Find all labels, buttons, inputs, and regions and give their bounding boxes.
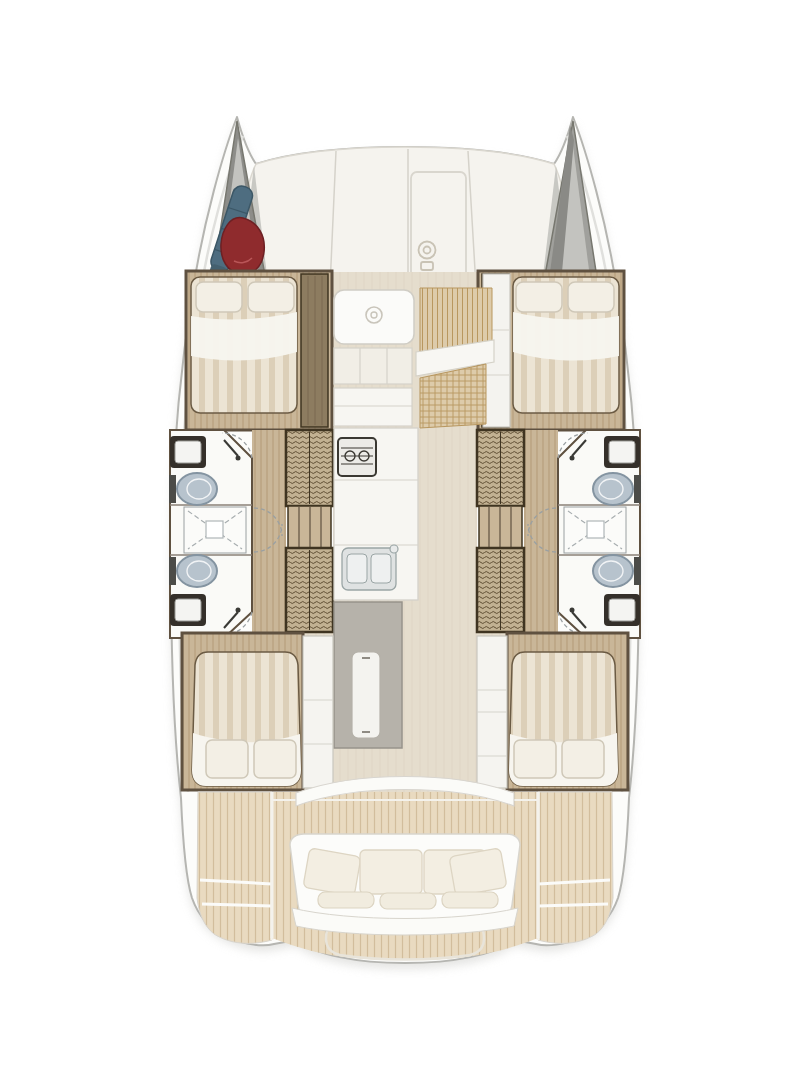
foredeck-lounge xyxy=(233,147,577,290)
cockpit xyxy=(272,792,538,960)
galley-sink xyxy=(342,545,398,590)
dinette xyxy=(416,288,494,428)
cockpit-bench xyxy=(290,834,520,935)
seat-cushion xyxy=(318,892,374,908)
stove-icon xyxy=(338,438,376,476)
catamaran-floorplan xyxy=(0,0,810,1080)
back-cushion xyxy=(360,850,422,894)
back-cushion xyxy=(303,848,361,896)
back-cushion xyxy=(449,848,507,896)
galley-island xyxy=(334,602,402,748)
seat-cushion xyxy=(442,892,498,908)
faucet-icon xyxy=(390,545,398,553)
floorplan-canvas xyxy=(0,0,810,1080)
seat-cushion xyxy=(380,893,436,909)
nav-table xyxy=(334,290,414,344)
